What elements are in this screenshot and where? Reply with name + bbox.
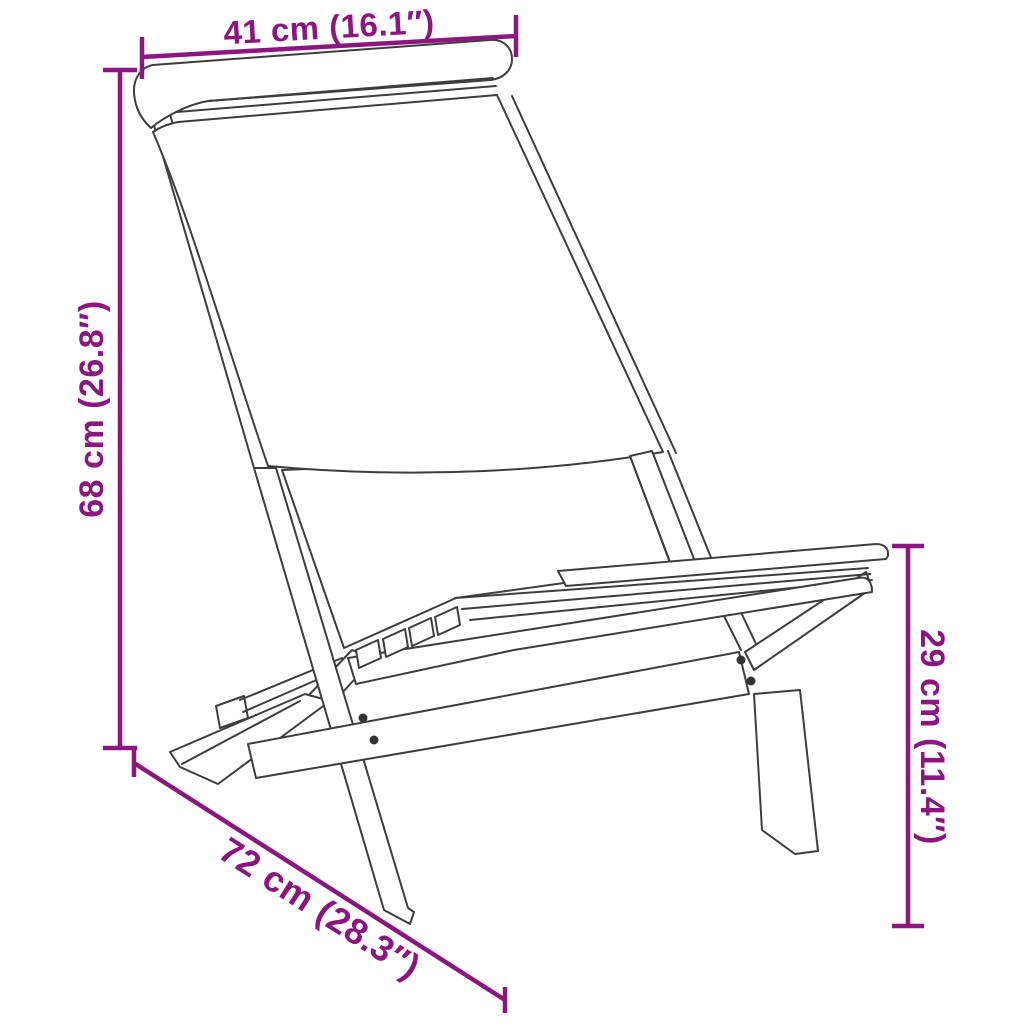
height-label: 68 cm (26.8″) — [73, 300, 111, 517]
slat-end-block — [409, 618, 434, 646]
slat-end-block — [435, 607, 460, 635]
screw-icon — [359, 714, 368, 723]
dimension-diagram: 41 cm (16.1″) 68 cm (26.8″) 29 cm (11.4″… — [0, 0, 1024, 1024]
dim-line — [134, 763, 505, 1000]
backrest-fabric — [153, 95, 663, 473]
screw-icon — [370, 736, 379, 745]
seat-height-label: 29 cm (11.4″) — [913, 629, 951, 845]
screw-icon — [747, 677, 756, 686]
under-seat-rail-edge — [722, 612, 741, 650]
screw-icon — [737, 656, 746, 665]
diagram-canvas: 41 cm (16.1″) 68 cm (26.8″) 29 cm (11.4″… — [0, 0, 1024, 1024]
depth-dimension-line — [134, 749, 505, 1013]
right-rear-leg — [754, 690, 818, 854]
chair-line-drawing — [134, 40, 888, 924]
